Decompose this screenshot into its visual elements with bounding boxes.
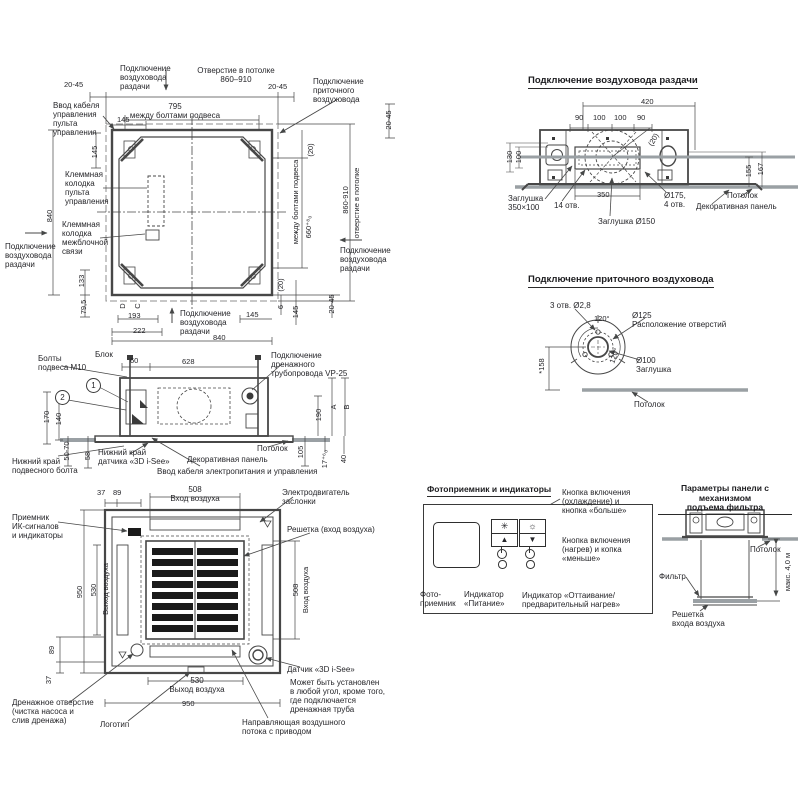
power-symbol-icon <box>497 549 507 559</box>
label-duct-supply-top: Подключение воздуховода раздачи <box>120 64 171 91</box>
callout-2: 2 <box>55 390 70 405</box>
dim-gap-top-right: 20-45 <box>268 83 287 91</box>
label-outlet-bottom: 530 Выход воздуха <box>160 676 234 694</box>
label-inlet-right: Вход воздуха <box>302 567 310 613</box>
mark-c: C <box>134 303 142 308</box>
label-drain-hole: Дренажное отверстие (чистка насоса и сли… <box>12 698 94 725</box>
dim-37-top: 37 <box>97 489 105 497</box>
label-duct-supply-right: Подключение воздуховода раздачи <box>340 246 391 273</box>
dim-100b: 100 <box>614 114 627 122</box>
label-logo: Логотип <box>100 720 129 729</box>
dim-79-5: 79,5 <box>80 300 88 315</box>
dim-133: 133 <box>78 275 86 288</box>
label-decor-panel-duct: Декоративная панель <box>696 202 777 211</box>
label-sensor-note: Может быть установлен в любой угол, кром… <box>290 678 385 714</box>
label-plug-350x100: Заглушка 350×100 <box>508 194 543 212</box>
dim-860-910-right: 860-910 <box>342 186 350 214</box>
label-btn-heat: Кнопка включения (нагрев) и копка «меньш… <box>562 536 630 563</box>
dim-145-top: 145 <box>117 116 130 124</box>
dim-660: 660⁺⁸₀ <box>305 216 313 239</box>
dim-60: 60 <box>130 357 138 365</box>
dim-58: 58 <box>84 452 92 460</box>
label-bolts-m10: Болты подвеса М10 <box>38 354 86 372</box>
label-ceiling-fresh: Потолок <box>634 400 665 409</box>
dim-37-bottom: 37 <box>45 676 53 684</box>
dim-167: 167 <box>757 163 765 176</box>
panel-view-drawing <box>662 510 798 611</box>
label-grille-inlet: Решетка (вход воздуха) <box>287 525 375 534</box>
cool-mode-icon: ✳ <box>492 520 517 534</box>
dim-840-left: 840 <box>46 210 54 223</box>
dim-89-bottom: 89 <box>48 646 56 654</box>
dim-105: 105 <box>297 446 305 459</box>
dim-950-bottom: 950 <box>182 700 195 708</box>
mark-d: D <box>119 303 127 308</box>
label-ind-defrost: Индикатор «Оттаивание/ предварительный н… <box>522 591 620 609</box>
heat-down-button: ☼ ▼ <box>519 519 546 547</box>
dim-508-right: 508 <box>292 584 300 597</box>
label-control-cable-entry: Ввод кабеля управления пульта управления <box>53 101 99 137</box>
dim-170: 170 <box>43 411 51 424</box>
title-fresh-air: Подключение приточного воздуховода <box>528 275 714 288</box>
title-photo-indicators: Фотоприемник и индикаторы <box>427 485 551 497</box>
power-led-indicator <box>498 560 507 569</box>
dim-222: 222 <box>133 327 146 335</box>
power-symbol-icon <box>525 549 535 559</box>
dim-530-left: 530 <box>90 584 98 597</box>
dim-gap-top-left: 20-45 <box>64 81 83 89</box>
label-duct-supply-left: Подключение воздуховода раздачи <box>5 242 56 269</box>
label-lower-edge-bolt: Нижний край подвесного болта <box>12 457 78 475</box>
label-d125-holes: Ø125 Расположение отверстий <box>632 311 726 329</box>
dim-145-bottom: 145 <box>246 311 259 319</box>
dim-950-left: 950 <box>76 586 84 599</box>
label-ceiling-opening-right: отверстие в потолке <box>353 168 361 239</box>
label-decor-panel-side: Декоративная панель <box>187 455 268 464</box>
callout-1: 1 <box>86 378 101 393</box>
dim-bolt-pitch-795: 795 между болтами подвеса <box>125 102 225 120</box>
dim-gap-right-bottom: 20-45 <box>328 294 336 313</box>
dim-145-right: 145 <box>292 306 300 319</box>
title-duct-connection: Подключение воздуховода раздачи <box>528 76 698 89</box>
label-outlet-left: Выход воздуха <box>102 563 110 615</box>
dim-paren-20-top: (20) <box>307 143 315 156</box>
defrost-led-indicator <box>526 560 535 569</box>
dim-628: 628 <box>182 358 195 366</box>
label-photo-receiver: Фото- приемник <box>420 590 456 608</box>
label-vane: Направляющая воздушного потока с приводо… <box>242 718 345 736</box>
dim-145-left: 145 <box>91 146 99 159</box>
label-terminal-interunit: Клеммная колодка межблочной связи <box>62 220 108 256</box>
label-ir-receiver: Приемник ИК-сигналов и индикаторы <box>12 513 63 540</box>
down-arrow-icon: ▼ <box>520 534 545 546</box>
dim-max-4m: макс. 4,0 м <box>784 553 792 591</box>
label-damper-motor: Электродвигатель заслонки <box>282 488 350 506</box>
dim-140: 140 <box>55 413 63 426</box>
label-plug-d150: Заглушка Ø150 <box>598 217 655 226</box>
dim-158: *158 <box>538 358 546 373</box>
label-terminal-remote: Клеммная колодка пульта управления <box>65 170 109 206</box>
up-arrow-icon: ▲ <box>492 534 517 546</box>
dim-a: A <box>330 404 338 409</box>
label-filter: Фильтр <box>659 572 686 581</box>
label-bolt-pitch-right: между болтами подвеса <box>292 160 300 245</box>
dim-90a: 90 <box>575 114 583 122</box>
heat-mode-icon: ☼ <box>520 520 545 534</box>
cool-up-button: ✳ ▲ <box>491 519 518 547</box>
label-grille-panel: Решетка входа воздуха <box>672 610 725 628</box>
label-sensor-3d: Датчик «3D i-See» <box>287 665 355 674</box>
technical-drawing-sheet: Подключение воздуховода раздачи Отверсти… <box>0 0 800 800</box>
label-inlet-top: 508 Вход воздуха <box>157 485 233 503</box>
label-ceiling-panel: Потолок <box>750 545 781 554</box>
label-ind-power: Индикатор «Питание» <box>464 590 504 608</box>
dim-17: 17⁺⁶₀ <box>321 450 329 469</box>
dim-120-a: 120° <box>594 315 610 323</box>
dim-6: 6 <box>277 305 285 309</box>
photo-receiver-window <box>433 522 480 568</box>
label-3-holes-d28: 3 отв. Ø2,8 <box>550 301 591 310</box>
dim-350: 350 <box>597 191 610 199</box>
dim-89-top: 89 <box>113 489 121 497</box>
label-power-cable: Ввод кабеля электропитания и управления <box>157 467 317 476</box>
label-d100-plug: Ø100 Заглушка <box>636 356 671 374</box>
dim-193: 193 <box>128 312 141 320</box>
label-d175-4holes: Ø175, 4 отв. <box>664 191 686 209</box>
label-btn-cool: Кнопка включения (охлаждение) и кнопка «… <box>562 488 630 515</box>
label-drain-vp25: Подключение дренажного трубопровода VP-2… <box>271 351 347 378</box>
label-ceiling-duct: Потолок <box>727 191 758 200</box>
dim-40: 40 <box>340 455 348 463</box>
dim-840-bottom: 840 <box>213 334 226 342</box>
dim-gap-right-top: 20-45 <box>385 110 393 129</box>
dim-155: 155 <box>745 165 753 178</box>
label-unit: Блок <box>95 350 113 359</box>
dim-90b: 90 <box>637 114 645 122</box>
dim-100-left: 100 <box>515 151 523 164</box>
label-fresh-air-connection: Подключение приточного воздуховода <box>313 77 364 104</box>
dim-420: 420 <box>641 98 654 106</box>
label-14-holes: 14 отв. <box>554 201 580 210</box>
dim-b: B <box>343 404 351 409</box>
dim-100a: 100 <box>593 114 606 122</box>
title-panel-filter-lift: Параметры панели с механизмом подъема фи… <box>658 484 792 515</box>
label-ceiling-side: Потолок <box>257 444 288 453</box>
dim-paren-20-bottom: (20) <box>277 278 285 291</box>
label-lower-edge-sensor: Нижний край датчика «3D i-See» <box>98 448 170 466</box>
dim-190: 190 <box>315 409 323 422</box>
